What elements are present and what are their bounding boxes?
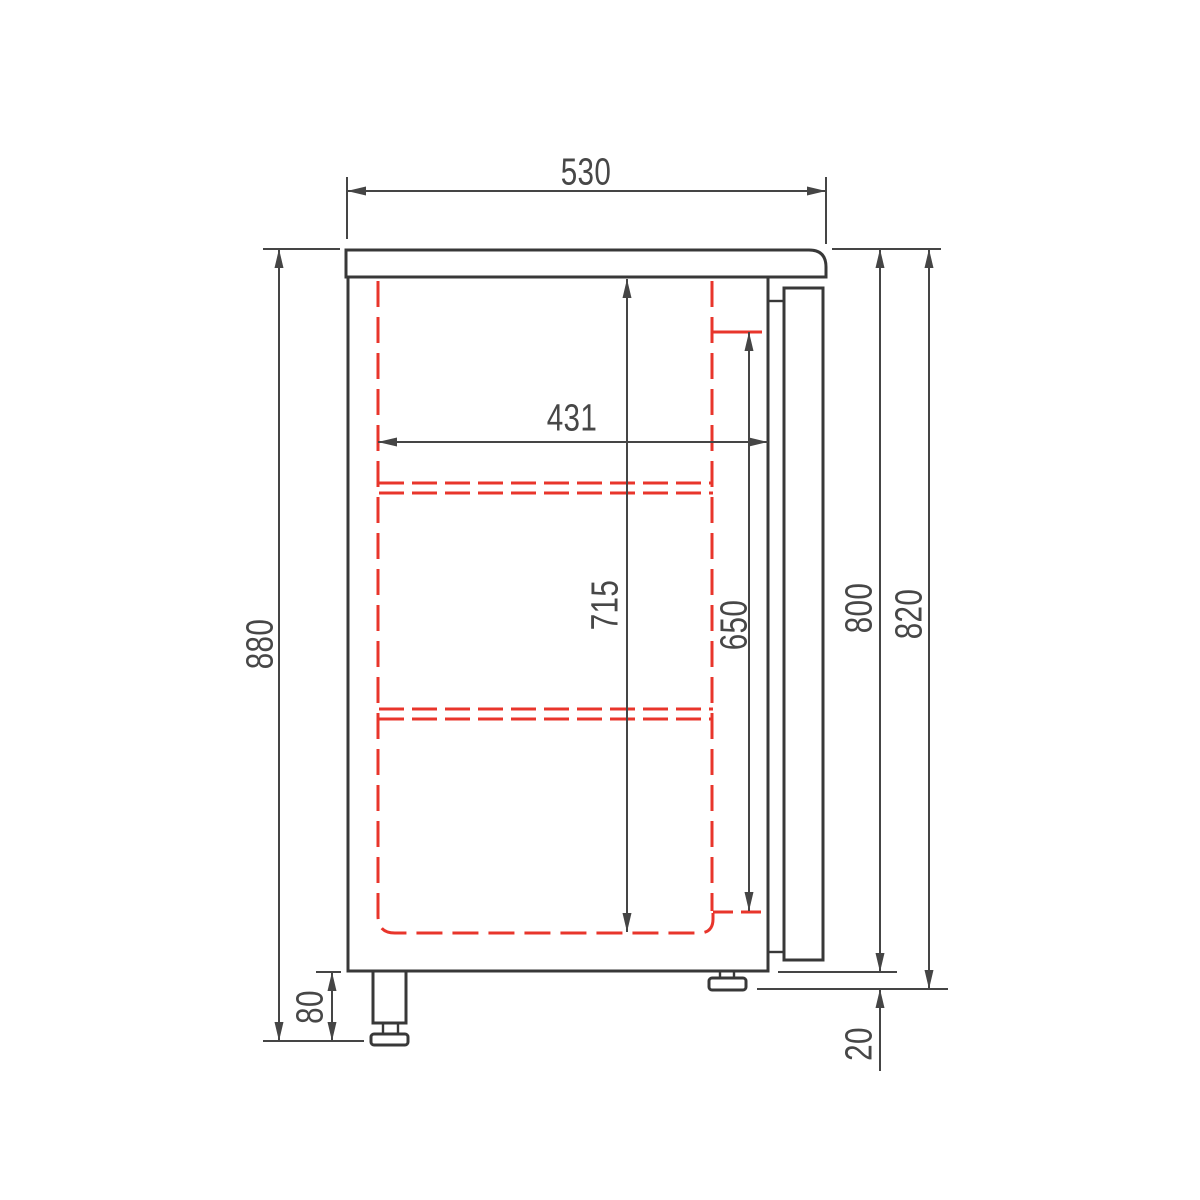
shelf-upper (379, 483, 713, 493)
inner-liner-hidden-lines (378, 281, 767, 933)
door-panel (784, 288, 823, 960)
side-section-drawing: 530 431 880 715 650 800 820 80 20 (0, 0, 1200, 1200)
dimension-labels: 530 431 880 715 650 800 820 80 20 (239, 151, 930, 1061)
technical-drawing-canvas: 530 431 880 715 650 800 820 80 20 (0, 0, 1200, 1200)
dim-label-interior-height: 715 (584, 580, 626, 631)
dim-label-front-foot-height: 80 (289, 990, 331, 1024)
cabinet-body (348, 277, 768, 971)
liner-left-bottom-dashed (378, 281, 713, 933)
front-foot (371, 971, 408, 1045)
dim-label-door-opening-height: 650 (713, 600, 755, 651)
dim-label-body-plus-rear-foot-height: 820 (888, 589, 930, 640)
countertop (346, 250, 826, 277)
shelf-lower (379, 709, 713, 719)
dim-label-rear-foot-height: 20 (838, 1027, 880, 1061)
dim-label-overall-height: 880 (239, 619, 281, 670)
dim-label-countertop-depth: 530 (561, 151, 612, 193)
rear-foot (709, 971, 746, 990)
dim-label-body-height: 800 (838, 583, 880, 634)
dim-label-interior-depth: 431 (547, 397, 598, 439)
